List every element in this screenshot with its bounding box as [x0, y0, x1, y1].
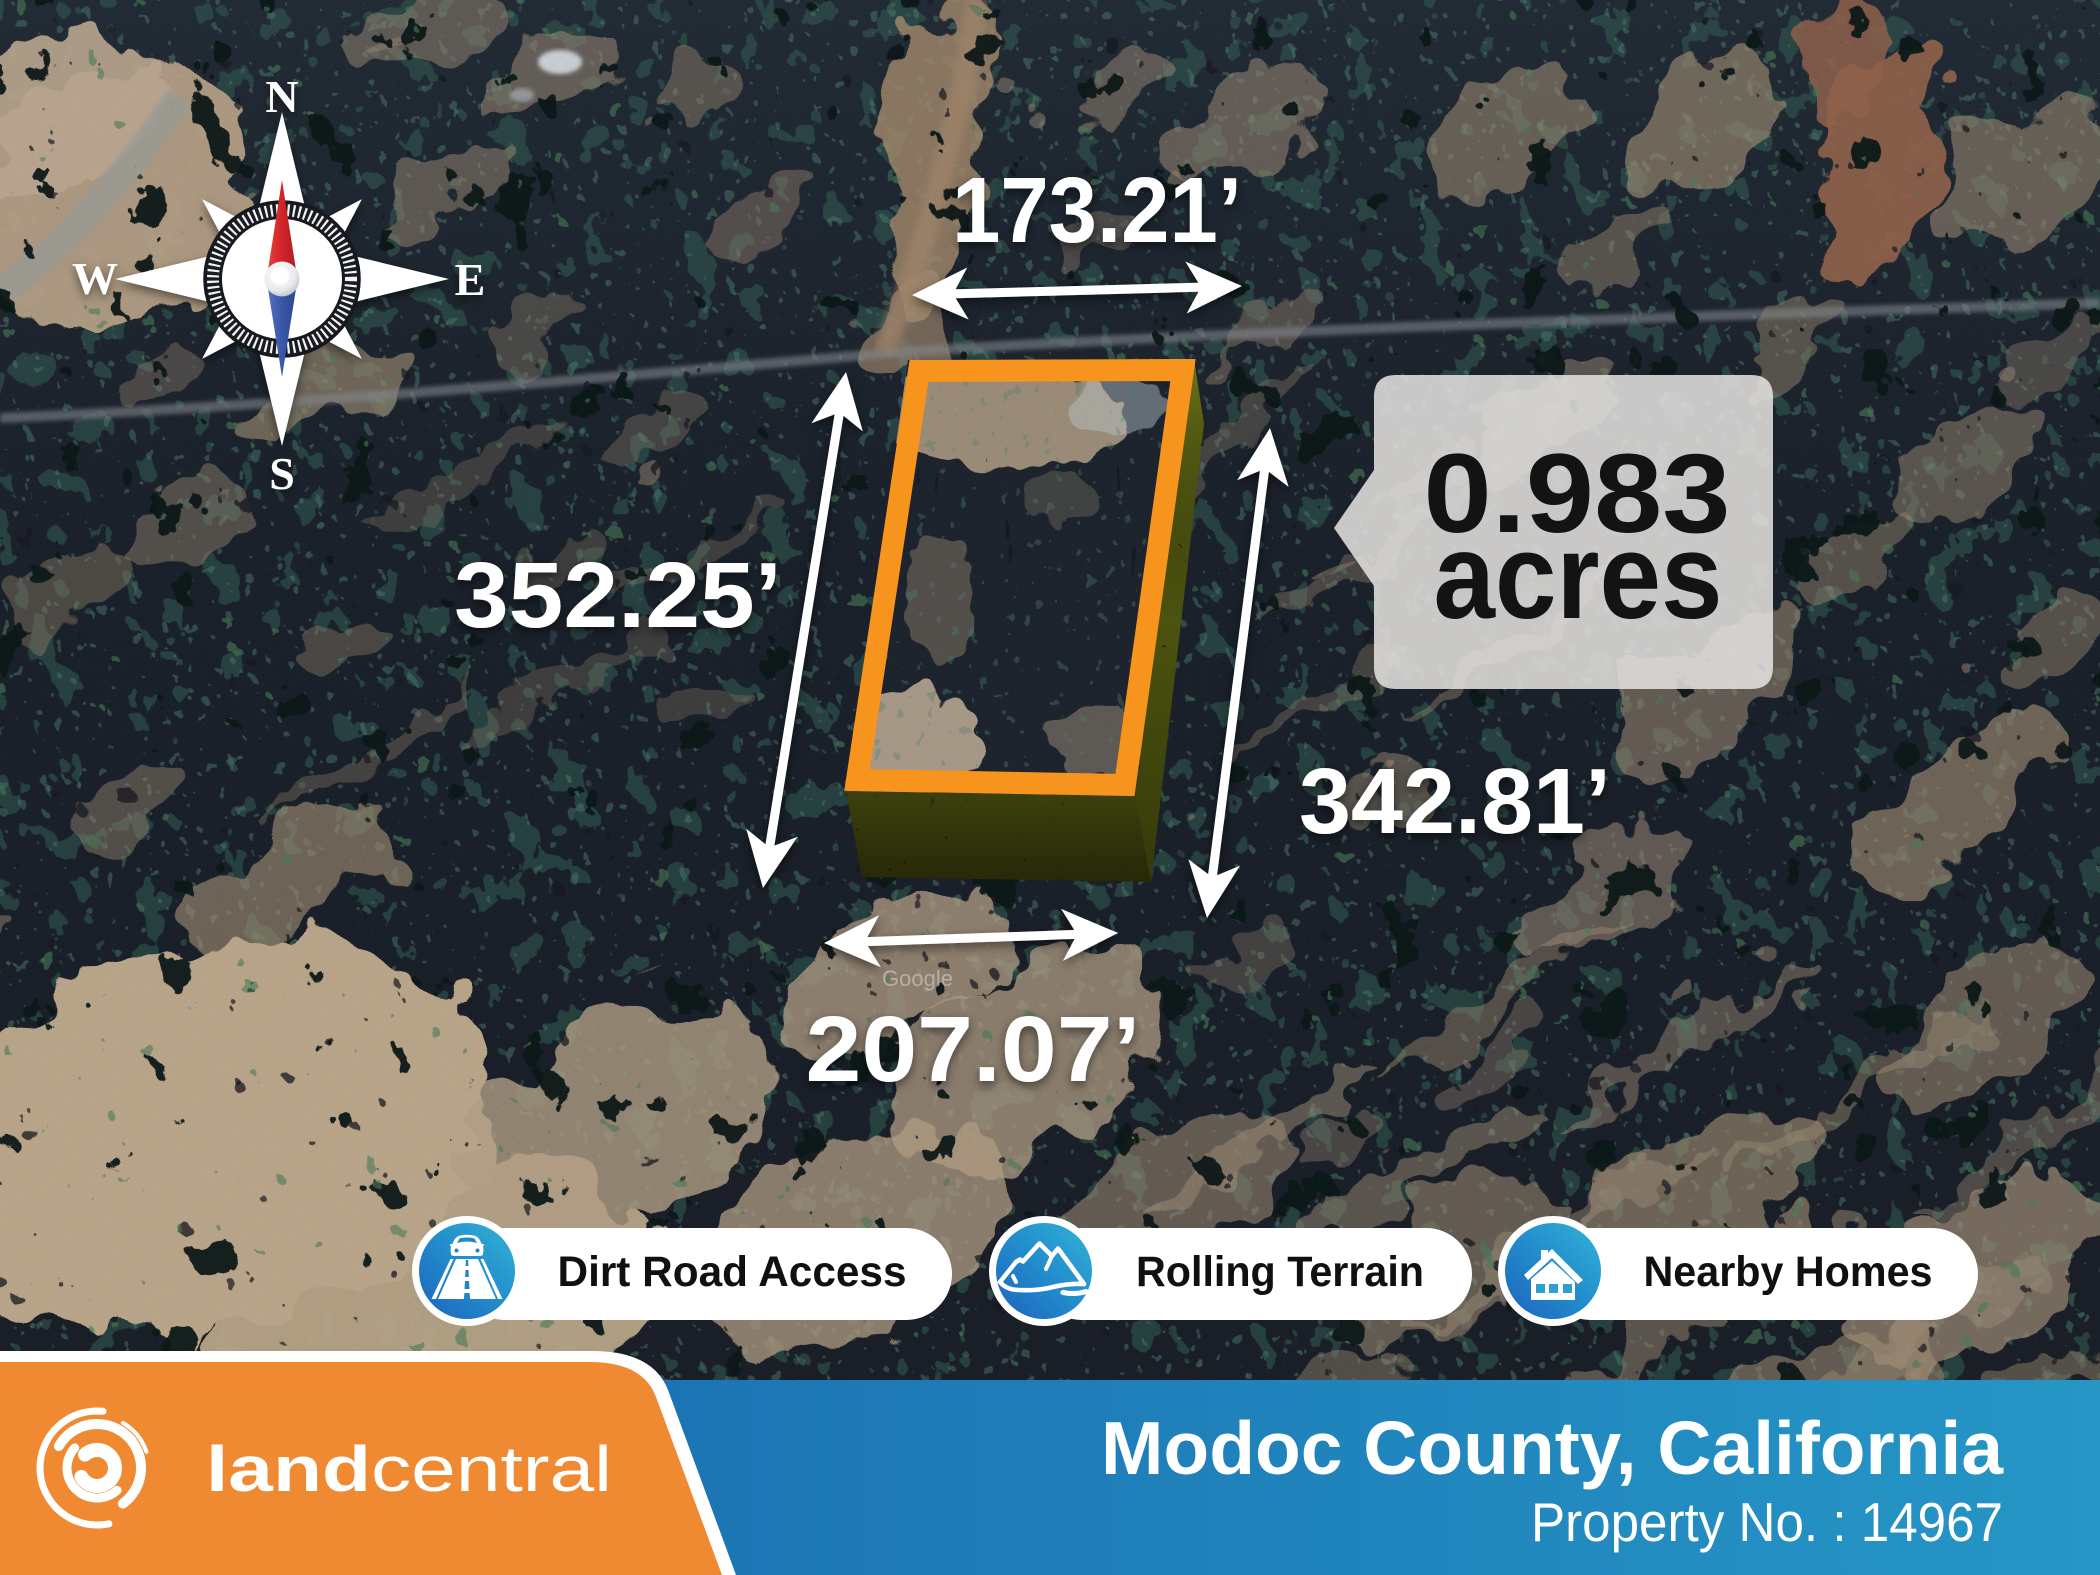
svg-text:Rolling Terrain: Rolling Terrain — [1136, 1248, 1424, 1296]
svg-text:N: N — [265, 71, 298, 122]
svg-text:Nearby Homes: Nearby Homes — [1644, 1248, 1933, 1296]
svg-text:S: S — [269, 448, 295, 499]
svg-text:207.07’: 207.07’ — [806, 997, 1141, 1101]
svg-text:E: E — [455, 254, 486, 305]
svg-text:acres: acres — [1434, 508, 1723, 644]
svg-text:342.81’: 342.81’ — [1299, 749, 1611, 853]
svg-text:Google: Google — [882, 966, 953, 991]
svg-text:352.25’: 352.25’ — [454, 543, 782, 647]
svg-text:Property No. : 14967: Property No. : 14967 — [1531, 1491, 2003, 1553]
svg-text:173.21’: 173.21’ — [952, 158, 1242, 262]
svg-text:W: W — [72, 253, 118, 304]
svg-text:Dirt Road Access: Dirt Road Access — [558, 1248, 907, 1296]
svg-text:Modoc County, California: Modoc County, California — [1101, 1406, 2004, 1490]
svg-text:landcentral: landcentral — [206, 1433, 612, 1505]
